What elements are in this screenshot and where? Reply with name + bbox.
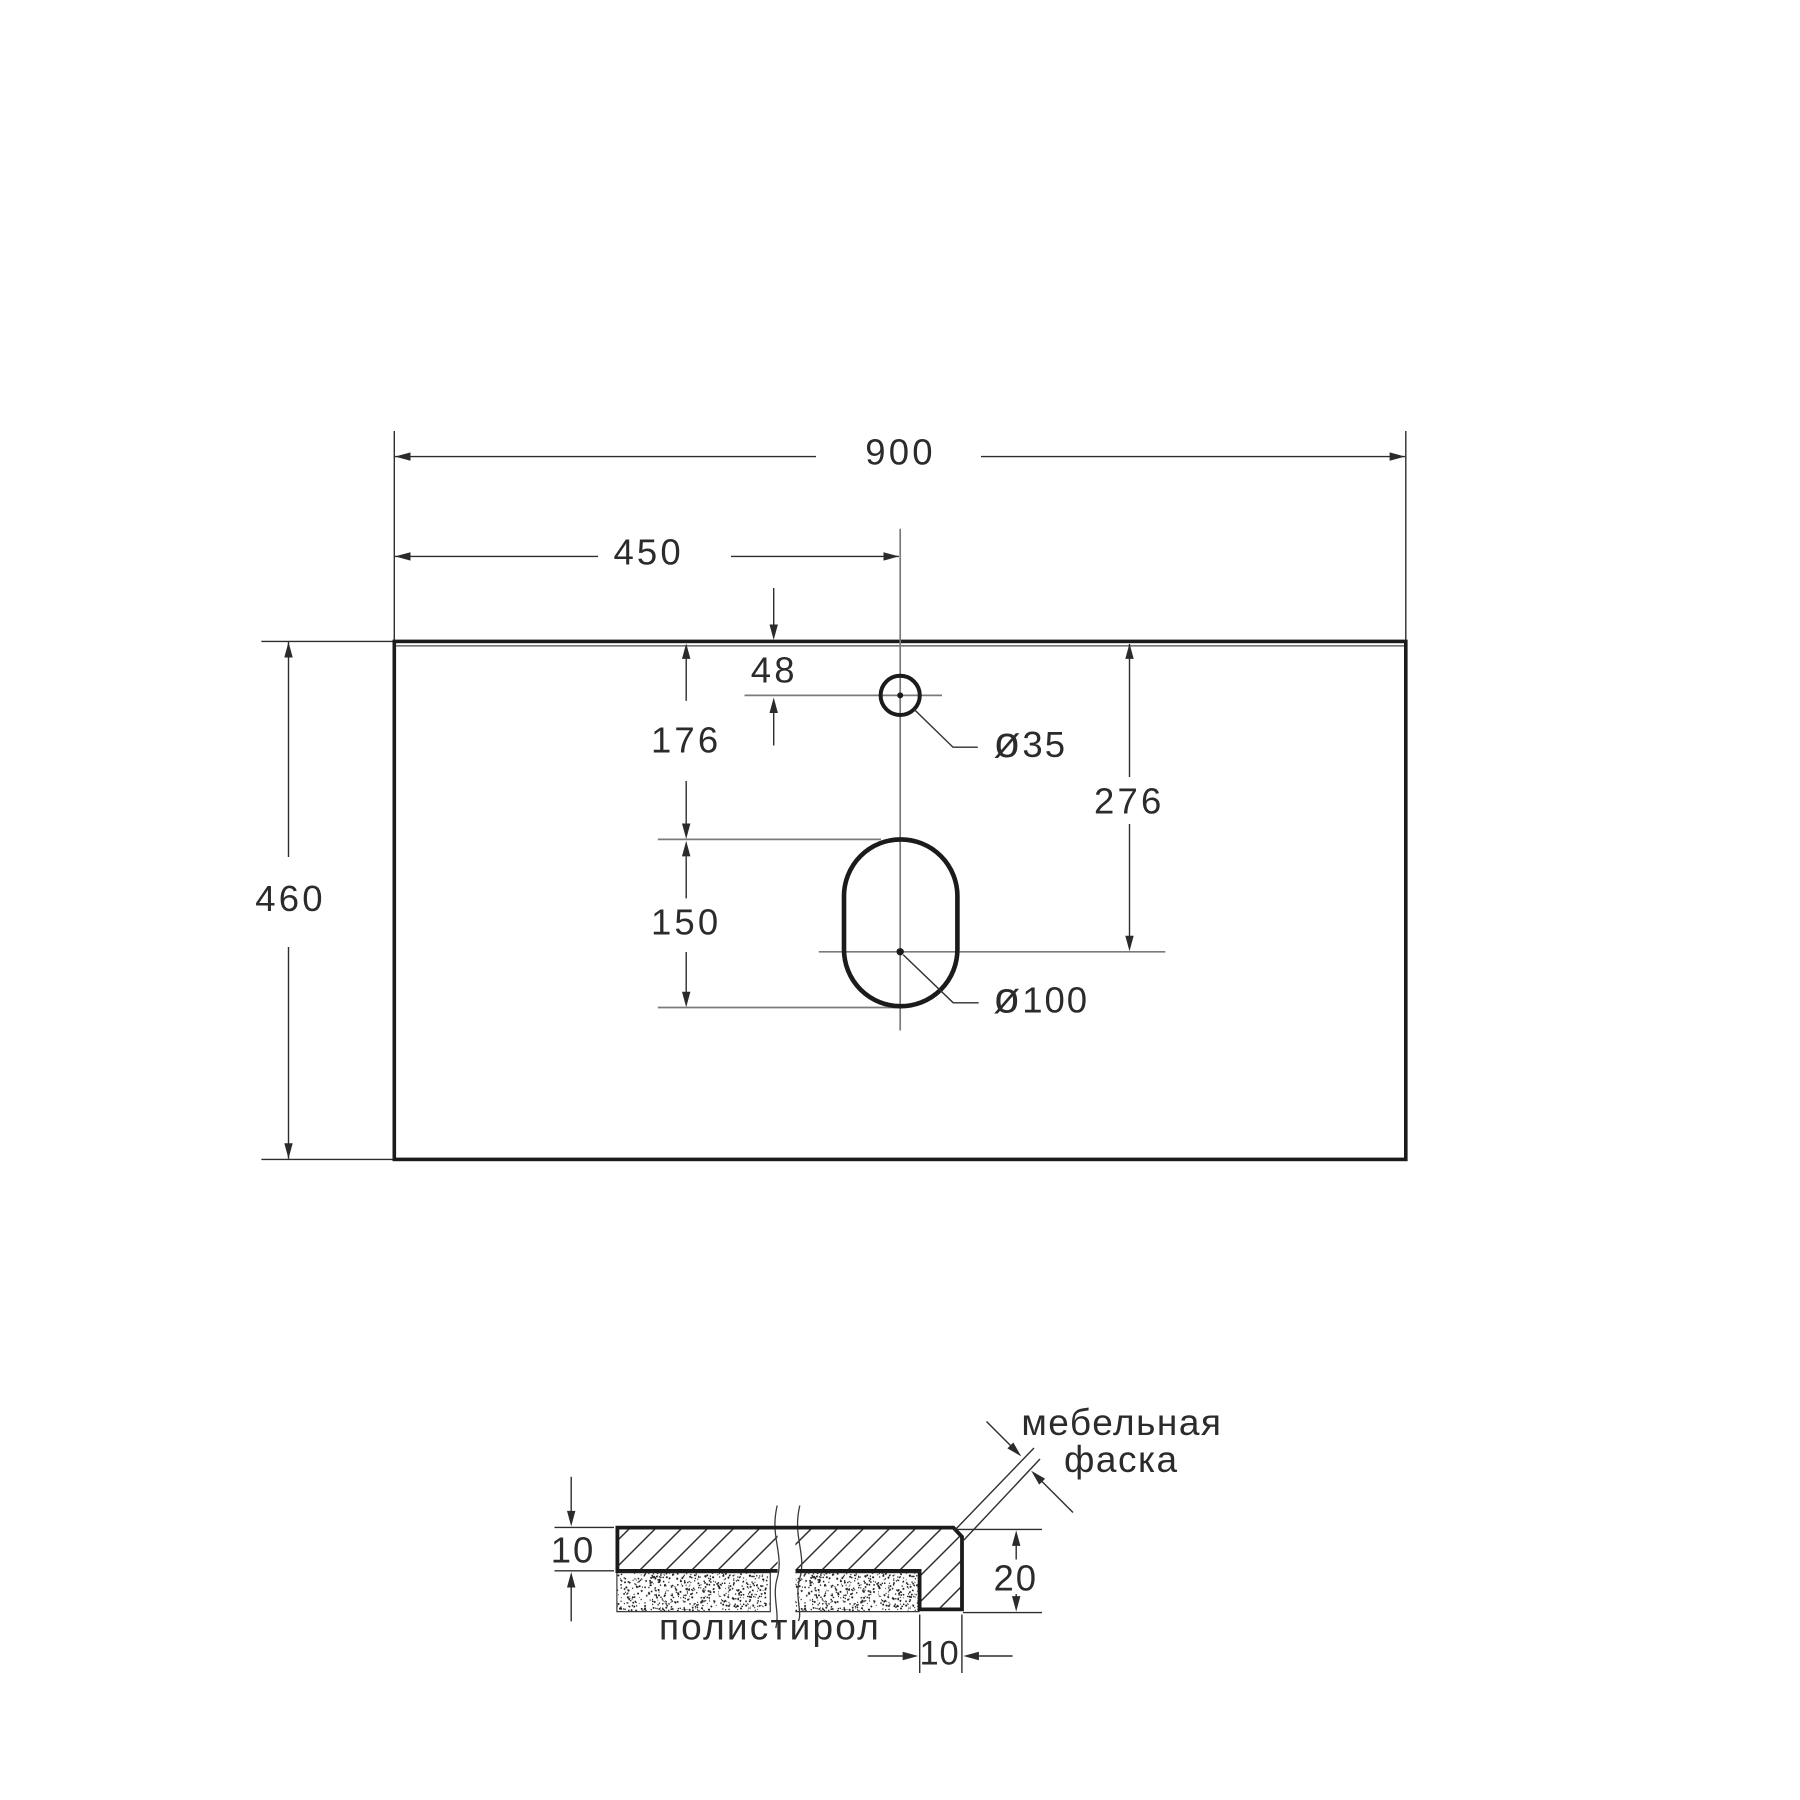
svg-text:900: 900 bbox=[865, 432, 936, 473]
svg-text:176: 176 bbox=[651, 719, 722, 760]
svg-text:150: 150 bbox=[651, 901, 722, 942]
svg-text:мебельная: мебельная bbox=[1021, 1402, 1222, 1443]
svg-text:10: 10 bbox=[551, 1530, 596, 1571]
svg-text:полистирол: полистирол bbox=[659, 1607, 881, 1648]
svg-text:460: 460 bbox=[255, 878, 326, 919]
svg-text:276: 276 bbox=[1094, 780, 1165, 821]
svg-text:450: 450 bbox=[613, 531, 684, 572]
svg-text:ø100: ø100 bbox=[993, 973, 1089, 1022]
svg-text:48: 48 bbox=[751, 650, 798, 691]
svg-text:ø35: ø35 bbox=[994, 718, 1068, 767]
svg-text:20: 20 bbox=[993, 1557, 1038, 1598]
svg-text:фаска: фаска bbox=[1064, 1439, 1179, 1480]
svg-text:10: 10 bbox=[920, 1635, 960, 1673]
